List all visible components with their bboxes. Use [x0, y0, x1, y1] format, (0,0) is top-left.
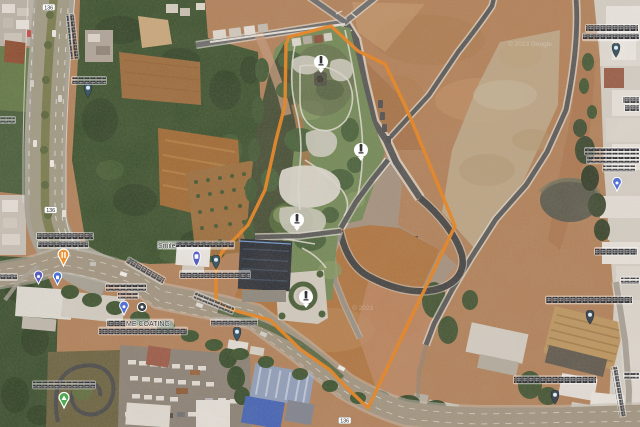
svg-text:Smile: Smile	[158, 243, 176, 250]
svg-text:136: 136	[46, 208, 55, 214]
svg-text:136: 136	[340, 419, 349, 425]
svg-text:136: 136	[44, 5, 53, 11]
